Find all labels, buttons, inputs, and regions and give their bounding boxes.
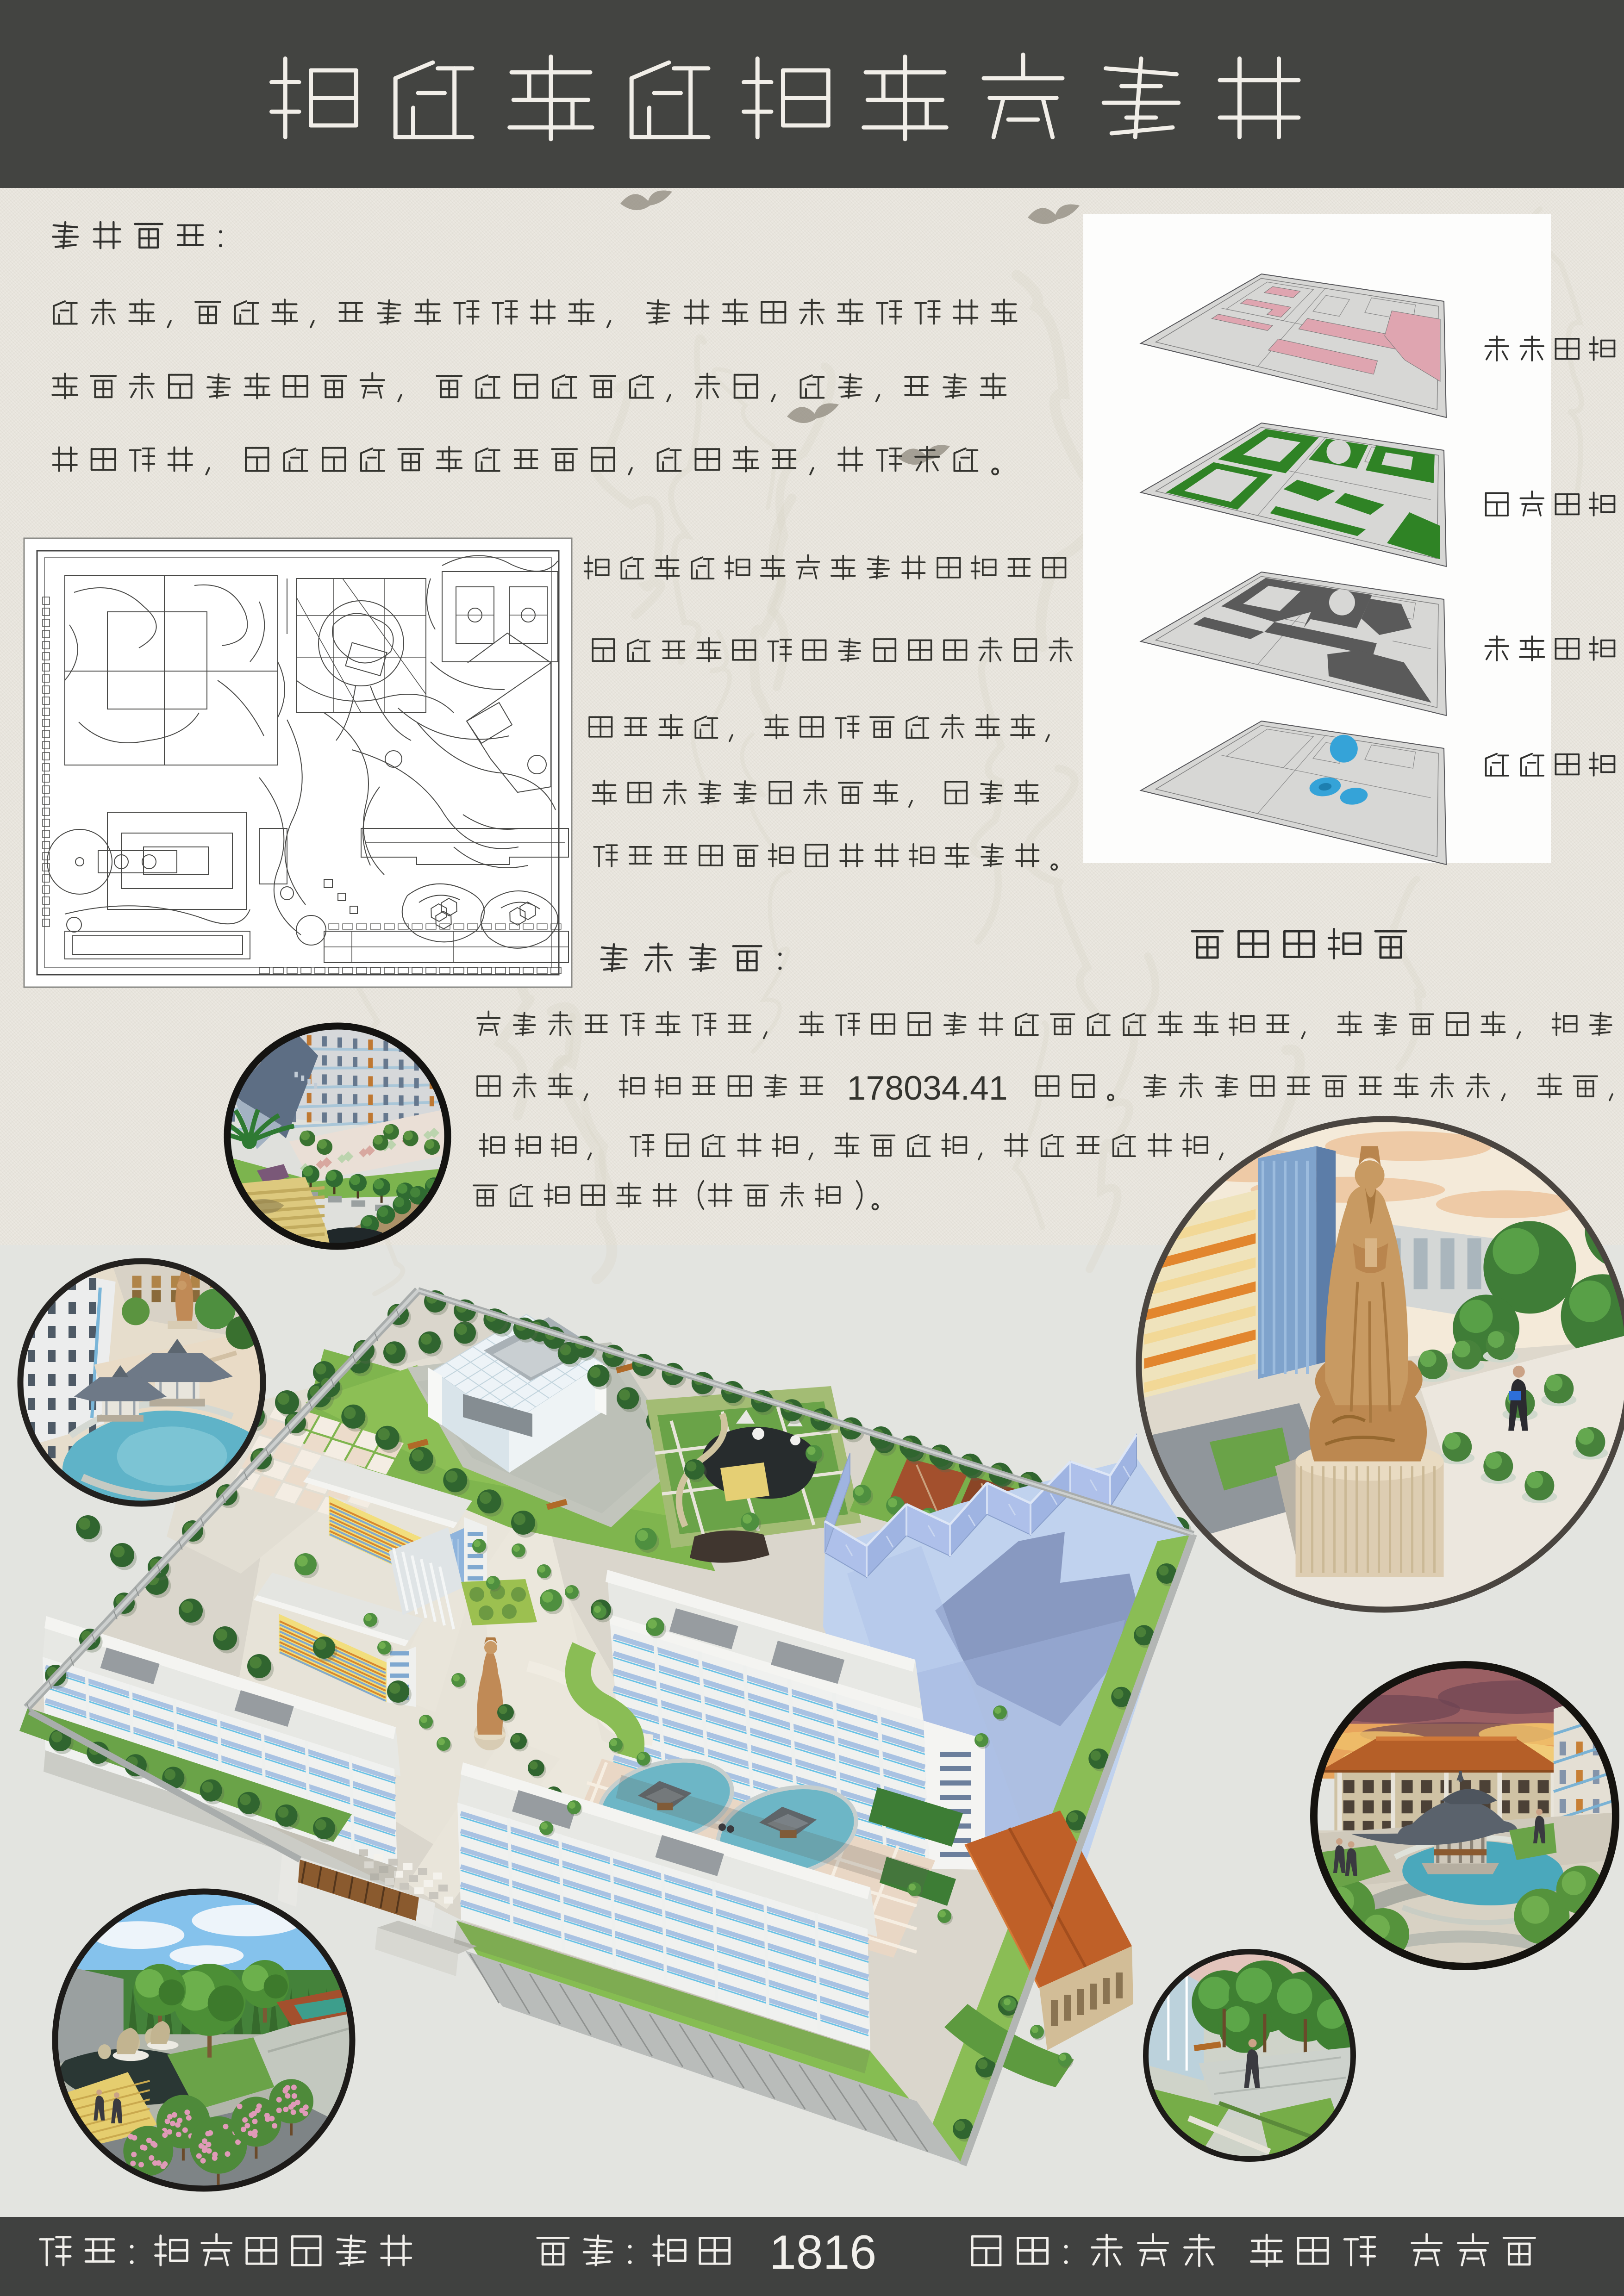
svg-text:178034.41: 178034.41 — [847, 1069, 1008, 1107]
svg-text:1816: 1816 — [769, 2226, 876, 2279]
